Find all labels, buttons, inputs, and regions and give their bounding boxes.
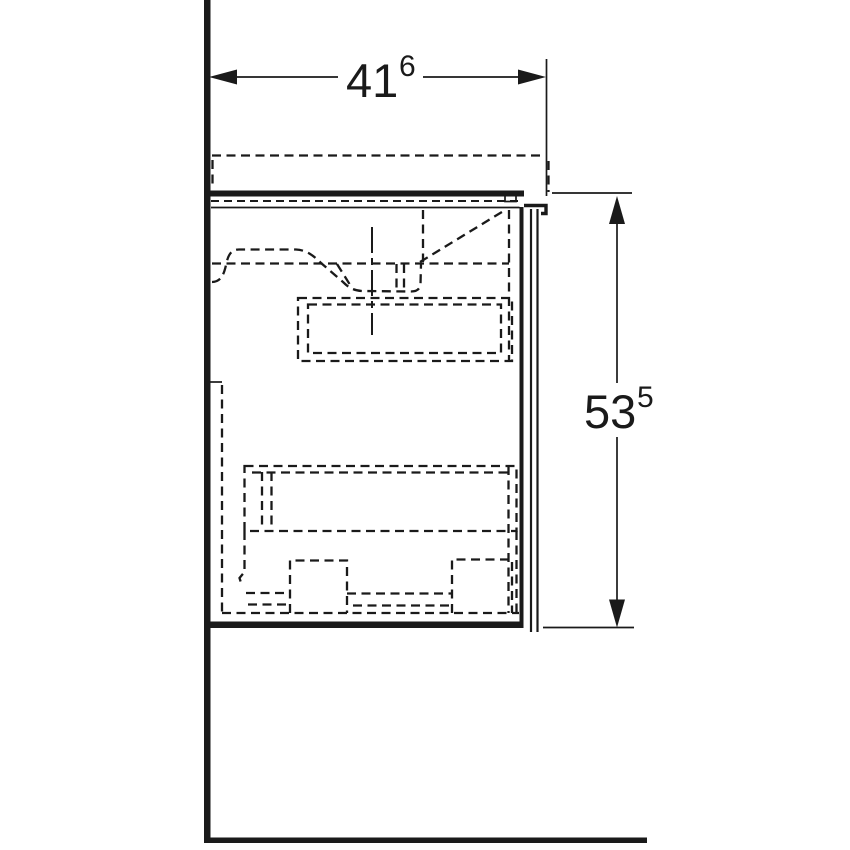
washbasin-hidden-outline bbox=[211, 156, 549, 362]
basin-rim-overhang bbox=[524, 206, 546, 214]
height-arrow-bottom bbox=[609, 600, 625, 628]
height-dim-superscript: 5 bbox=[637, 381, 654, 414]
vanity-section-drawing: 41 6 53 5 bbox=[0, 0, 850, 850]
width-arrow-right bbox=[518, 70, 546, 85]
cabinet-front-edge bbox=[520, 207, 524, 628]
left-pipe-bend bbox=[240, 531, 245, 586]
trap-box-outer bbox=[245, 466, 517, 531]
cabinet-bottom-line bbox=[207, 622, 523, 629]
under-basin-box-inner bbox=[308, 305, 501, 354]
height-dim-value: 53 bbox=[584, 385, 636, 438]
basin-diagonal bbox=[420, 210, 506, 263]
width-dim-value: 41 bbox=[346, 54, 398, 107]
wall-line bbox=[204, 0, 211, 843]
siphon-hidden-outline bbox=[222, 385, 519, 613]
width-dimension: 41 6 bbox=[209, 50, 547, 196]
wall-and-floor bbox=[204, 0, 647, 843]
width-arrow-left bbox=[209, 70, 237, 85]
cabinet-carcass bbox=[206, 191, 546, 633]
technical-drawing-canvas: 41 6 53 5 bbox=[0, 0, 850, 850]
countertop-line bbox=[207, 191, 524, 197]
basin-bowl-profile bbox=[212, 250, 421, 292]
floor-line bbox=[204, 838, 647, 844]
under-basin-box-outer bbox=[298, 298, 512, 361]
basin-top-outline bbox=[212, 156, 549, 193]
width-dim-superscript: 6 bbox=[399, 50, 416, 83]
left-foot-outline bbox=[290, 561, 347, 614]
height-dimension: 53 5 bbox=[543, 193, 654, 628]
height-arrow-top bbox=[609, 196, 625, 224]
right-foot-outline bbox=[452, 560, 512, 614]
